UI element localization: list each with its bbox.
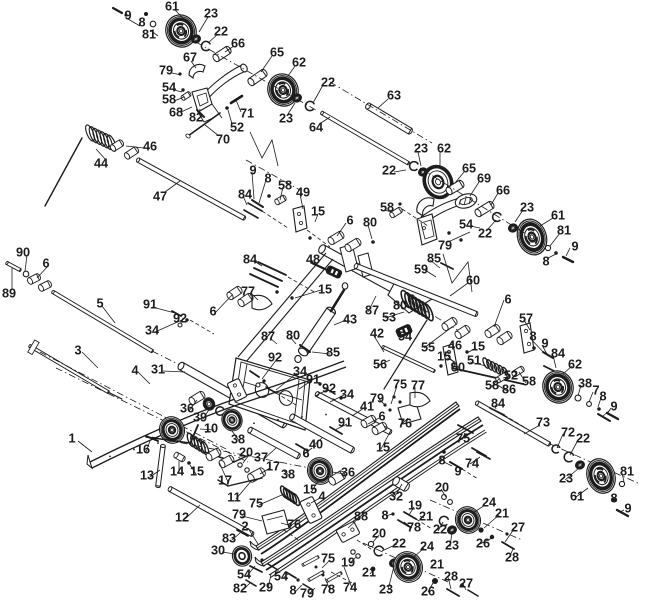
svg-text:66: 66 — [231, 37, 245, 51]
svg-text:92: 92 — [322, 382, 336, 396]
svg-text:32: 32 — [389, 490, 403, 504]
svg-text:92: 92 — [268, 351, 282, 365]
svg-text:54: 54 — [398, 330, 412, 344]
svg-text:86: 86 — [502, 383, 516, 397]
svg-text:61: 61 — [570, 490, 584, 504]
svg-text:60: 60 — [466, 274, 480, 288]
svg-text:64: 64 — [309, 121, 323, 135]
svg-text:36: 36 — [341, 466, 355, 480]
svg-text:6: 6 — [346, 214, 353, 228]
svg-text:77: 77 — [411, 379, 425, 393]
svg-text:23: 23 — [559, 472, 573, 486]
svg-text:9: 9 — [571, 240, 578, 254]
svg-text:19: 19 — [341, 556, 355, 570]
svg-text:84: 84 — [238, 188, 252, 202]
svg-text:72: 72 — [561, 426, 575, 440]
svg-text:9: 9 — [624, 502, 631, 516]
svg-text:58: 58 — [485, 379, 499, 393]
svg-text:1: 1 — [68, 432, 75, 446]
svg-text:74: 74 — [343, 581, 357, 595]
svg-text:46: 46 — [143, 140, 157, 154]
svg-text:6: 6 — [302, 447, 309, 461]
svg-text:12: 12 — [175, 511, 189, 525]
svg-text:77: 77 — [241, 285, 255, 299]
svg-text:54: 54 — [459, 218, 473, 232]
svg-text:44: 44 — [94, 157, 108, 171]
svg-text:4: 4 — [318, 490, 325, 504]
svg-text:82: 82 — [189, 111, 203, 125]
svg-text:21: 21 — [430, 558, 444, 572]
svg-text:24: 24 — [420, 540, 434, 554]
svg-text:79: 79 — [159, 64, 173, 78]
svg-text:34: 34 — [293, 365, 307, 379]
svg-text:79: 79 — [300, 587, 314, 600]
svg-text:42: 42 — [370, 327, 384, 341]
svg-text:62: 62 — [292, 56, 306, 70]
svg-text:22: 22 — [478, 227, 492, 241]
svg-text:27: 27 — [459, 577, 473, 591]
svg-text:69: 69 — [477, 172, 491, 186]
svg-text:48: 48 — [306, 253, 320, 267]
svg-text:16: 16 — [136, 443, 150, 457]
svg-text:58: 58 — [162, 93, 176, 107]
svg-text:87: 87 — [365, 304, 379, 318]
svg-text:9: 9 — [124, 9, 131, 23]
svg-text:4: 4 — [131, 364, 138, 378]
svg-text:17: 17 — [218, 474, 232, 488]
svg-text:80: 80 — [286, 329, 300, 343]
svg-text:47: 47 — [153, 190, 167, 204]
svg-text:5: 5 — [96, 297, 103, 311]
svg-text:75: 75 — [456, 432, 470, 446]
svg-text:74: 74 — [465, 457, 479, 471]
svg-text:9: 9 — [610, 400, 617, 414]
svg-text:81: 81 — [557, 224, 571, 238]
svg-text:28: 28 — [444, 570, 458, 584]
svg-text:8: 8 — [438, 454, 445, 468]
svg-text:68: 68 — [169, 106, 183, 120]
svg-text:23: 23 — [414, 142, 428, 156]
svg-text:13: 13 — [140, 469, 154, 483]
svg-text:79: 79 — [438, 239, 452, 253]
svg-text:20: 20 — [435, 481, 449, 495]
svg-text:67: 67 — [183, 51, 197, 65]
svg-text:85: 85 — [427, 252, 441, 266]
svg-text:29: 29 — [259, 581, 273, 595]
svg-text:22: 22 — [321, 76, 335, 90]
svg-text:14: 14 — [170, 465, 184, 479]
svg-text:52: 52 — [504, 369, 518, 383]
svg-text:81: 81 — [620, 465, 634, 479]
svg-text:30: 30 — [211, 544, 225, 558]
svg-text:23: 23 — [204, 7, 218, 21]
svg-text:55: 55 — [421, 341, 435, 355]
svg-text:85: 85 — [326, 346, 340, 360]
svg-text:21: 21 — [419, 510, 433, 524]
svg-text:23: 23 — [520, 201, 534, 215]
svg-text:84: 84 — [243, 253, 257, 267]
svg-text:40: 40 — [309, 438, 323, 452]
svg-text:71: 71 — [240, 107, 254, 121]
svg-text:7: 7 — [592, 384, 599, 398]
svg-text:15: 15 — [303, 483, 317, 497]
svg-text:58: 58 — [380, 201, 394, 215]
svg-text:51: 51 — [467, 354, 481, 368]
svg-text:2: 2 — [241, 520, 248, 534]
svg-text:24: 24 — [482, 496, 496, 510]
svg-text:87: 87 — [261, 330, 275, 344]
svg-text:28: 28 — [505, 551, 519, 565]
svg-text:66: 66 — [496, 184, 510, 198]
svg-text:65: 65 — [270, 46, 284, 60]
svg-text:8: 8 — [381, 509, 388, 523]
svg-text:34: 34 — [145, 324, 159, 338]
svg-text:58: 58 — [278, 179, 292, 193]
svg-text:90: 90 — [16, 246, 30, 260]
svg-text:26: 26 — [421, 585, 435, 599]
svg-text:80: 80 — [393, 299, 407, 313]
svg-text:22: 22 — [214, 25, 228, 39]
svg-text:17: 17 — [266, 460, 280, 474]
svg-text:8: 8 — [289, 584, 296, 598]
svg-text:59: 59 — [414, 263, 428, 277]
svg-text:6: 6 — [378, 410, 385, 424]
svg-text:6: 6 — [42, 257, 49, 271]
svg-text:22: 22 — [433, 523, 447, 537]
svg-text:50: 50 — [451, 361, 465, 375]
svg-text:75: 75 — [393, 378, 407, 392]
svg-text:63: 63 — [387, 89, 401, 103]
svg-text:21: 21 — [362, 566, 376, 580]
svg-text:57: 57 — [519, 312, 533, 326]
svg-text:75: 75 — [321, 552, 335, 566]
svg-text:76: 76 — [398, 417, 412, 431]
svg-text:27: 27 — [511, 521, 525, 535]
svg-text:70: 70 — [216, 133, 230, 147]
svg-text:61: 61 — [551, 209, 565, 223]
svg-text:8: 8 — [264, 172, 271, 186]
svg-text:15: 15 — [376, 441, 390, 455]
svg-text:89: 89 — [2, 287, 16, 301]
svg-text:20: 20 — [372, 527, 386, 541]
svg-text:73: 73 — [536, 416, 550, 430]
svg-text:34: 34 — [340, 388, 354, 402]
svg-text:11: 11 — [227, 491, 240, 505]
svg-text:75: 75 — [249, 497, 263, 511]
svg-text:20: 20 — [239, 446, 253, 460]
svg-text:82: 82 — [233, 582, 247, 596]
svg-text:38: 38 — [281, 468, 295, 482]
svg-text:15: 15 — [190, 465, 204, 479]
svg-text:58: 58 — [522, 375, 536, 389]
svg-text:56: 56 — [373, 358, 387, 372]
svg-text:80: 80 — [363, 216, 377, 230]
svg-text:9: 9 — [454, 465, 461, 479]
svg-text:15: 15 — [311, 205, 325, 219]
svg-text:62: 62 — [568, 358, 582, 372]
svg-text:6: 6 — [504, 293, 511, 307]
svg-text:92: 92 — [173, 312, 187, 326]
svg-text:8: 8 — [542, 255, 549, 269]
svg-text:81: 81 — [142, 28, 156, 42]
svg-text:91: 91 — [338, 416, 352, 430]
svg-text:38: 38 — [578, 377, 592, 391]
svg-text:76: 76 — [287, 518, 301, 532]
svg-text:15: 15 — [318, 283, 332, 297]
svg-text:61: 61 — [165, 0, 179, 14]
svg-text:23: 23 — [445, 539, 459, 553]
svg-text:9: 9 — [249, 164, 256, 178]
svg-text:10: 10 — [204, 422, 218, 436]
svg-text:8: 8 — [529, 330, 536, 344]
svg-text:22: 22 — [382, 164, 396, 178]
svg-text:84: 84 — [551, 347, 565, 361]
svg-text:6: 6 — [209, 305, 216, 319]
svg-text:21: 21 — [495, 507, 509, 521]
svg-text:43: 43 — [343, 313, 357, 327]
svg-text:8: 8 — [599, 390, 606, 404]
svg-text:54: 54 — [274, 570, 288, 584]
svg-text:22: 22 — [392, 537, 406, 551]
svg-text:88: 88 — [354, 510, 368, 524]
svg-text:23: 23 — [279, 112, 293, 126]
svg-text:22: 22 — [576, 432, 590, 446]
svg-text:54: 54 — [237, 568, 251, 582]
svg-text:41: 41 — [360, 400, 374, 414]
svg-text:52: 52 — [230, 121, 244, 135]
svg-text:65: 65 — [462, 162, 476, 176]
svg-text:38: 38 — [231, 433, 245, 447]
svg-text:3: 3 — [74, 344, 81, 358]
svg-text:15: 15 — [471, 340, 485, 354]
svg-text:53: 53 — [382, 311, 396, 325]
svg-text:46: 46 — [448, 339, 462, 353]
svg-text:23: 23 — [379, 583, 393, 597]
svg-text:91: 91 — [143, 298, 157, 312]
svg-text:36: 36 — [180, 402, 194, 416]
svg-text:26: 26 — [476, 537, 490, 551]
svg-text:84: 84 — [491, 397, 505, 411]
svg-text:91: 91 — [306, 373, 320, 387]
svg-text:49: 49 — [296, 186, 310, 200]
svg-text:62: 62 — [437, 142, 451, 156]
svg-text:31: 31 — [151, 363, 165, 377]
svg-text:9: 9 — [541, 337, 548, 351]
svg-text:78: 78 — [321, 583, 335, 597]
svg-text:8: 8 — [610, 492, 617, 506]
